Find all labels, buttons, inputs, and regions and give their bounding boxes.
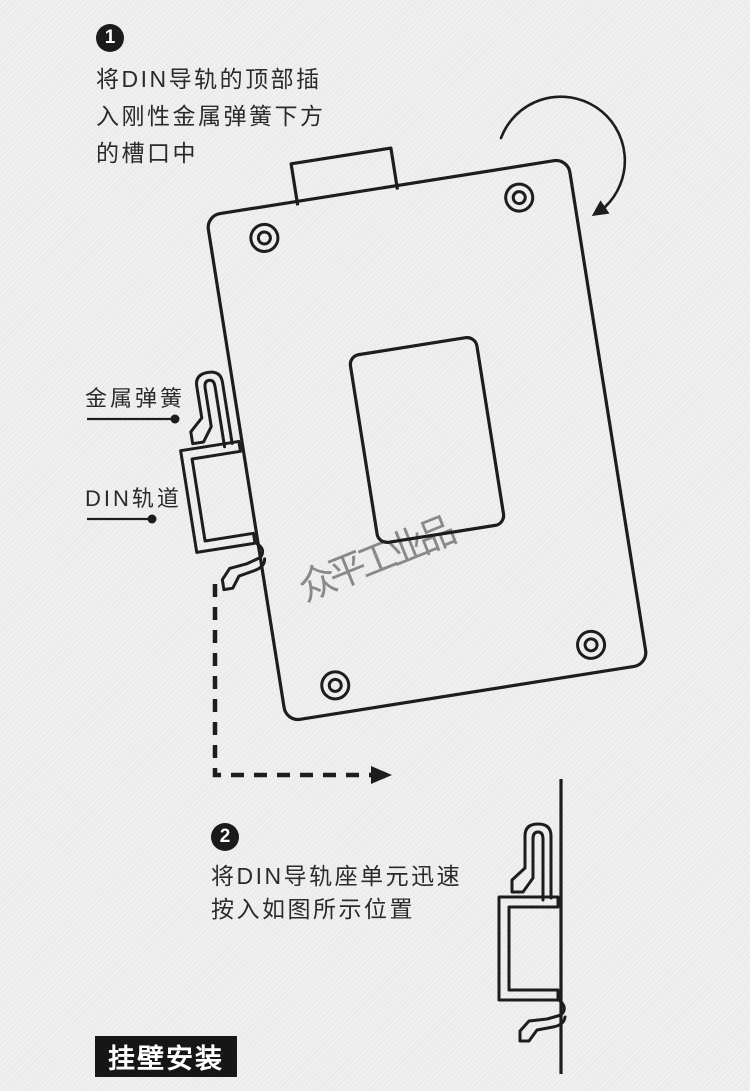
step-1-line-2: 入刚性金属弹簧下方: [96, 98, 326, 135]
step-2-instructions: 将DIN导轨座单元迅速 按入如图所示位置: [211, 860, 462, 926]
device-cutout: [349, 336, 505, 544]
section-title-badge: 挂壁安装: [95, 1036, 237, 1077]
callout-leader-metal-spring: [87, 415, 180, 424]
step-1-line-1: 将DIN导轨的顶部插: [96, 61, 326, 98]
screw-hole-icon: [504, 182, 535, 213]
screw-hole-icon: [320, 670, 351, 701]
motion-arrow-icon: [215, 584, 392, 784]
din-rail-bracket-icon: [499, 824, 565, 1041]
screw-hole-icon: [576, 629, 607, 660]
callout-leader-din-rail: [87, 515, 157, 524]
step-2-line-2: 按入如图所示位置: [211, 893, 462, 926]
callout-label-din-rail: DIN轨道: [85, 481, 182, 513]
instruction-sheet: 众平工业品: [0, 0, 750, 1091]
rotation-arrow-icon: [501, 97, 625, 216]
step-2-line-1: 将DIN导轨座单元迅速: [211, 860, 462, 893]
step-1-line-3: 的槽口中: [96, 135, 326, 172]
step-2-number-badge: 2: [211, 823, 239, 851]
screw-hole-icon: [249, 223, 280, 254]
wall-mounted-bracket-diagram: [499, 779, 565, 1074]
step-1: 1 将DIN导轨的顶部插 入刚性金属弹簧下方 的槽口中: [96, 24, 326, 172]
step-1-number-badge: 1: [96, 24, 124, 52]
step-1-instructions: 将DIN导轨的顶部插 入刚性金属弹簧下方 的槽口中: [96, 61, 326, 172]
step-2: 2 将DIN导轨座单元迅速 按入如图所示位置: [211, 823, 462, 926]
callout-label-metal-spring: 金属弹簧: [85, 381, 185, 413]
